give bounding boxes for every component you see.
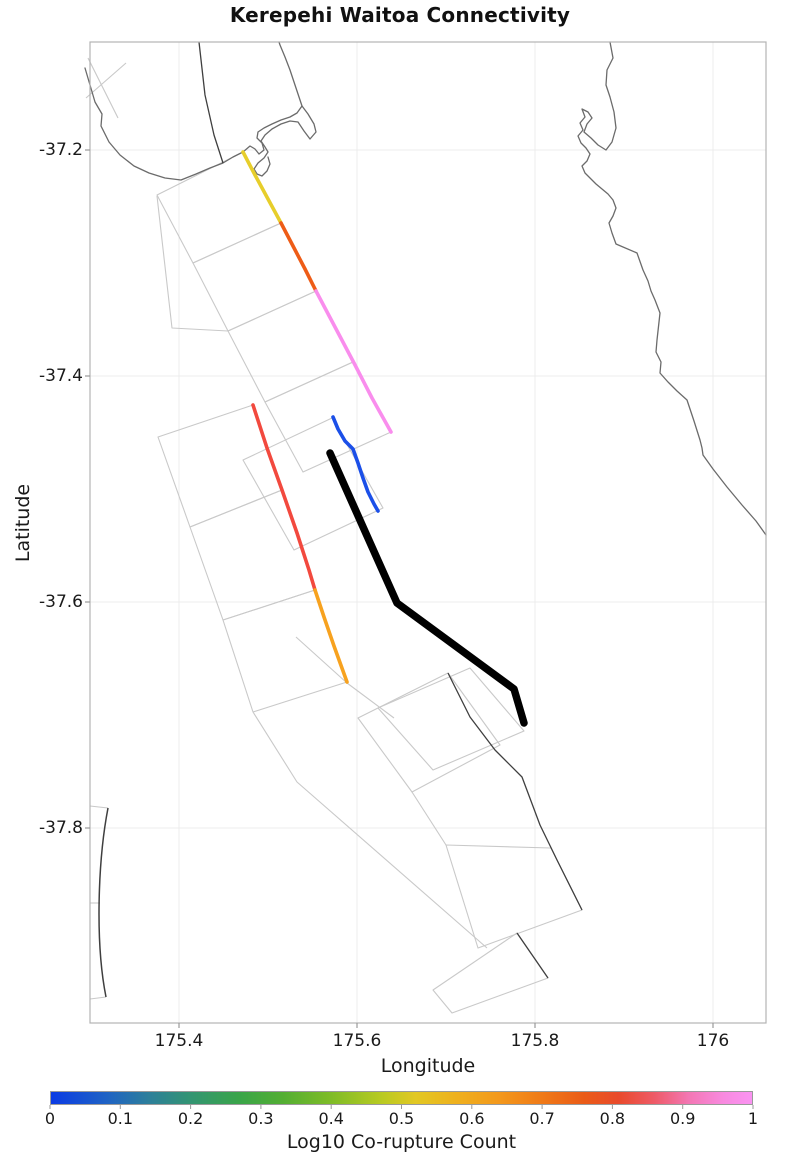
colorbar-tick-label: 0.2 <box>178 1109 203 1128</box>
colorbar-label: Log10 Co-rupture Count <box>50 1131 753 1153</box>
y-tick-label: -37.2 <box>13 140 83 160</box>
colorbar-tick-label: 0.8 <box>600 1109 625 1128</box>
x-tick-label: 176 <box>697 1031 729 1051</box>
north-band-quad-1 <box>157 152 281 263</box>
map-plot-area <box>0 0 800 1171</box>
colorbar-tick-label: 0 <box>45 1109 55 1128</box>
west-arc-connector-bottom <box>90 997 106 999</box>
central-band-quad-2 <box>190 490 315 620</box>
southeast-fault-trace <box>448 673 582 910</box>
colorbar-tick-label: 0.9 <box>670 1109 695 1128</box>
south-quad <box>446 845 582 948</box>
central-band-quad-1 <box>158 405 282 527</box>
north-band-quad-2 <box>193 223 316 331</box>
colorbar-gradient <box>50 1091 753 1105</box>
colorbar-tick-label: 1 <box>748 1109 758 1128</box>
north-segment-pink <box>316 291 391 432</box>
y-tick-label: -37.8 <box>13 818 83 838</box>
north-segment-yellow <box>243 152 281 223</box>
thames-estuary-spit <box>254 106 316 176</box>
firth-west-south-shore <box>85 42 302 180</box>
north-segment-orangered <box>281 223 316 291</box>
coromandel-west-coast <box>578 42 766 535</box>
kerepehi-waitoa-highlighted-sections <box>330 453 524 723</box>
north-fault-trace <box>199 42 223 163</box>
x-tick-label: 175.4 <box>155 1031 204 1051</box>
colorbar-tick-label: 0.3 <box>248 1109 273 1128</box>
east-segment-blue <box>333 417 378 511</box>
x-axis-label: Longitude <box>90 1055 766 1077</box>
x-tick-label: 175.6 <box>333 1031 382 1051</box>
colorbar-tick-label: 0.4 <box>318 1109 343 1128</box>
bend-quad-b <box>358 673 500 792</box>
y-axis-label: Latitude <box>12 453 34 593</box>
south-rect <box>433 933 548 1013</box>
bend-to-south-link <box>412 792 446 845</box>
y-tick-label: -37.4 <box>13 366 83 386</box>
west-arc-fault <box>99 808 108 997</box>
south-fault-trace <box>517 933 548 978</box>
y-tick-label: -37.6 <box>13 592 83 612</box>
central-band-quad-3 <box>223 590 347 712</box>
colorbar-tick-label: 0.5 <box>389 1109 414 1128</box>
nw-cross-line-2 <box>88 58 118 118</box>
colorbar-tick-label: 0.6 <box>459 1109 484 1128</box>
x-tick-label: 175.8 <box>511 1031 560 1051</box>
colorbar-tick-label: 0.7 <box>529 1109 554 1128</box>
north-band-quad-3 <box>228 291 353 402</box>
colorbar-tick-label: 0.1 <box>108 1109 133 1128</box>
south-cluster-edge <box>253 712 487 948</box>
west-arc-connector-top <box>90 806 108 808</box>
figure: Kerepehi Waitoa Connectivity 175.4175.61… <box>0 0 800 1171</box>
